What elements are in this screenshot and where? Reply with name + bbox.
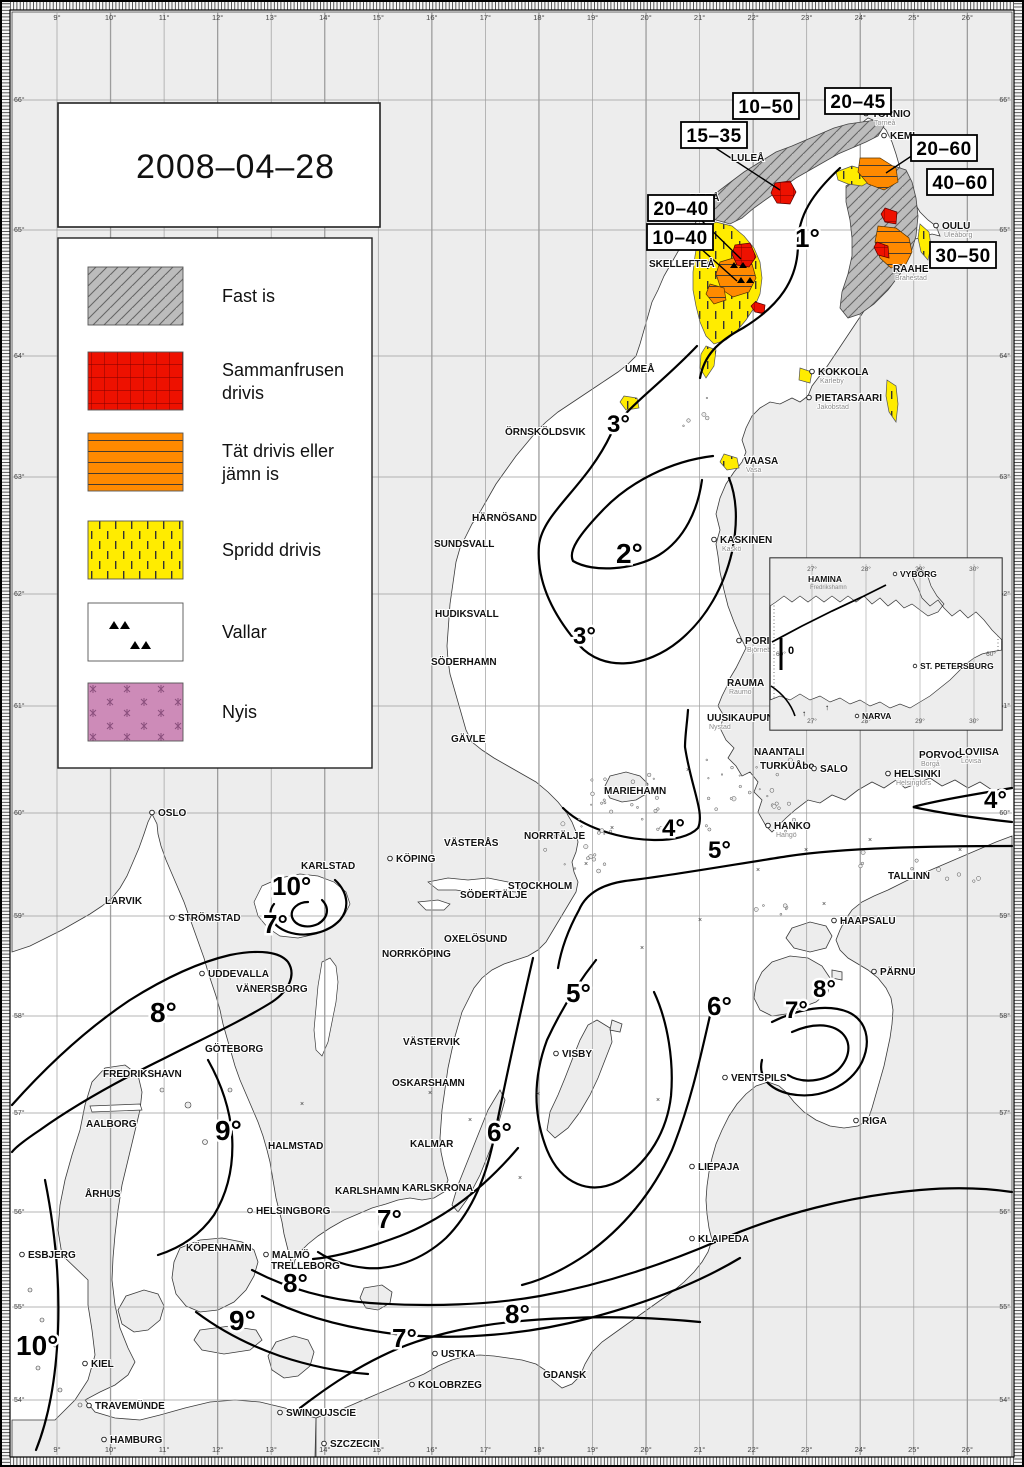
islet-speck	[590, 804, 591, 805]
city-label: HALMSTAD	[268, 1141, 323, 1152]
longitude-label-bottom: 20°	[640, 1445, 651, 1454]
city-label: MALMÖ	[272, 1248, 310, 1261]
city-label: GÖTEBORG	[205, 1042, 264, 1055]
city-secondary-name: Brahestad	[895, 275, 927, 282]
inset-city-marker	[893, 572, 897, 576]
inset-city-secondary-name: Fredrikshamn	[810, 585, 847, 591]
longitude-label-top: 15°	[373, 13, 384, 22]
islet-speck	[731, 766, 734, 769]
observation-mark: ×	[584, 861, 588, 868]
inset-longitude-label: 30°	[969, 565, 979, 573]
longitude-label-bottom: 13°	[266, 1445, 277, 1454]
city-label: HUDIKSVALL	[435, 609, 499, 620]
longitude-label-bottom: 10°	[105, 1445, 116, 1454]
inset-city-label: NARVA	[862, 711, 891, 721]
city-secondary-name: Nystad	[709, 724, 731, 731]
legend-label: drivis	[222, 383, 264, 403]
legend-label: Nyis	[222, 702, 257, 722]
observation-mark: ×	[536, 1091, 540, 1098]
city-marker	[723, 1075, 728, 1080]
inset-city-marker	[913, 664, 917, 668]
ruler-band-right	[1014, 1, 1023, 1466]
city-label: MARIEHAMN	[604, 786, 666, 797]
city-secondary-name: Borgå	[921, 760, 940, 768]
city-secondary-name: Jakobstad	[817, 404, 849, 411]
longitude-label-bottom: 25°	[908, 1445, 919, 1454]
city-label: PÄRNU	[880, 965, 916, 978]
city-label: AALBORG	[86, 1119, 137, 1130]
longitude-label-bottom: 9°	[53, 1445, 60, 1454]
city-marker	[388, 856, 393, 861]
inset-arrow-mark: ↑	[802, 709, 806, 718]
islet-speck	[937, 867, 941, 871]
isotherm-value-label: 7°	[263, 909, 288, 939]
city-label: NORRKÖPING	[382, 947, 451, 960]
islet-speck	[636, 806, 638, 808]
city-marker	[872, 969, 877, 974]
legend-swatch-fast-ice	[88, 267, 183, 325]
city-marker	[810, 369, 815, 374]
islet-speck	[591, 792, 595, 796]
islet	[78, 1403, 82, 1407]
ice-thickness-label: 20–45	[825, 88, 891, 114]
latitude-label-left: 54°	[14, 1396, 25, 1404]
city-label: RIGA	[862, 1116, 887, 1127]
islet-speck	[945, 877, 949, 881]
longitude-label-bottom: 17°	[480, 1445, 491, 1454]
islet-speck	[756, 766, 758, 768]
city-label: HANKO	[774, 821, 811, 832]
islet-speck	[915, 859, 918, 862]
longitude-label-top: 10°	[105, 13, 116, 22]
latitude-label-left: 55°	[14, 1303, 25, 1311]
latitude-label-left: 62°	[14, 590, 25, 598]
observation-mark: ×	[756, 867, 760, 874]
islet-speck	[631, 780, 635, 784]
legend-swatch-open-drift-ice	[88, 521, 183, 579]
city-marker	[690, 1164, 695, 1169]
city-label: LOVIISA	[959, 747, 999, 758]
longitude-label-top: 9°	[53, 13, 60, 22]
city-label: KLAIPEDA	[698, 1234, 749, 1245]
city-label: KOKKOLA	[818, 367, 869, 378]
city-label: RAUMA	[727, 678, 764, 689]
longitude-label-top: 23°	[801, 13, 812, 22]
city-marker	[170, 915, 175, 920]
ice-chart-page: 9°9°10°10°11°11°12°12°13°13°14°14°15°15°…	[0, 0, 1024, 1467]
inset-zero-isotherm-label: 0	[788, 645, 794, 657]
inset-longitude-label: 27°	[807, 717, 817, 725]
city-marker	[886, 771, 891, 776]
latitude-label-right: 55°	[999, 1303, 1010, 1311]
longitude-label-top: 18°	[533, 13, 544, 22]
islet-speck	[706, 397, 708, 399]
city-marker	[20, 1252, 25, 1257]
islet-speck	[861, 850, 865, 854]
isotherm-value-label: 8°	[505, 1299, 530, 1329]
isotherm-value-label: 10°	[16, 1330, 58, 1361]
city-label: PORVOO	[919, 750, 963, 761]
city-marker	[83, 1361, 88, 1366]
longitude-label-bottom: 16°	[426, 1445, 437, 1454]
svg-text:10–40: 10–40	[652, 228, 707, 249]
islet-speck	[911, 867, 914, 870]
legend-label: Vallar	[222, 622, 267, 642]
islet-speck	[561, 822, 565, 826]
city-label: ESBJERG	[28, 1250, 76, 1261]
isotherm-value-label: 5°	[708, 837, 731, 864]
ice-thickness-label: 20–60	[911, 135, 977, 161]
longitude-label-top: 26°	[962, 13, 973, 22]
city-label: LIEPAJA	[698, 1162, 740, 1173]
islet-speck	[597, 831, 600, 834]
city-label: KÖPENHAMN	[186, 1241, 252, 1254]
islet-speck	[770, 788, 774, 792]
baltic-ice-chart-map: 9°9°10°10°11°11°12°12°13°13°14°14°15°15°…	[0, 0, 1024, 1467]
city-secondary-name: Torneå	[874, 119, 896, 127]
city-label: ÖRNSKÖLDSVIK	[505, 425, 586, 438]
ice-thickness-label: 15–35	[681, 122, 747, 148]
observation-mark: ×	[610, 825, 614, 832]
islet-speck	[785, 908, 787, 910]
city-label: OXELÖSUND	[444, 932, 507, 945]
city-label: HAMBURG	[110, 1435, 162, 1446]
legend-label: Sammanfrusen	[222, 360, 344, 380]
islet-speck	[604, 833, 605, 834]
isotherm-value-label: 2°	[616, 538, 643, 569]
islet-speck	[705, 416, 709, 420]
city-label: SÖDERHAMN	[431, 655, 497, 668]
islet-speck	[641, 818, 643, 820]
city-label: FREDRIKSHAVN	[103, 1069, 182, 1080]
islet-speck	[767, 795, 769, 797]
islet	[28, 1288, 32, 1292]
isotherm-value-label: 7°	[392, 1323, 417, 1353]
observation-mark: ×	[300, 1101, 304, 1108]
observation-mark: ×	[958, 847, 962, 854]
city-label: PORI	[745, 636, 770, 647]
city-marker	[737, 638, 742, 643]
city-marker	[87, 1403, 92, 1408]
latitude-label-left: 63°	[14, 473, 25, 481]
latitude-label-left: 59°	[14, 912, 25, 920]
islet-speck	[702, 412, 706, 416]
islet-speck	[574, 868, 576, 870]
city-secondary-name: Vasa	[746, 467, 762, 474]
longitude-label-bottom: 12°	[212, 1445, 223, 1454]
svg-text:40–60: 40–60	[932, 173, 987, 194]
islet	[40, 1318, 44, 1322]
islet	[203, 1140, 208, 1145]
observation-mark: ×	[822, 901, 826, 908]
longitude-label-top: 20°	[640, 13, 651, 22]
city-marker	[554, 1051, 559, 1056]
city-label: HELSINGBORG	[256, 1206, 331, 1217]
latitude-label-left: 57°	[14, 1109, 25, 1117]
chart-date: 2008–04–28	[136, 148, 335, 186]
islet	[160, 1088, 164, 1092]
isotherm-value-label: 7°	[785, 997, 808, 1024]
latitude-label-right: 57°	[999, 1109, 1010, 1117]
islet	[36, 1366, 40, 1370]
islet-speck	[591, 779, 593, 781]
longitude-label-top: 12°	[212, 13, 223, 22]
islet-speck	[739, 785, 742, 788]
islet-speck	[715, 808, 718, 811]
legend-swatch-new-ice	[88, 683, 183, 741]
inset-longitude-label: 27°	[807, 565, 817, 573]
islet-speck	[657, 828, 660, 831]
city-label: NAANTALI	[754, 747, 805, 758]
city-label: NORRTÄLJE	[524, 829, 585, 842]
svg-text:20–45: 20–45	[830, 92, 885, 113]
islet-speck	[647, 773, 651, 777]
isotherm-value-label: 5°	[566, 978, 591, 1008]
longitude-label-top: 14°	[319, 13, 330, 22]
isotherm-value-label: 9°	[215, 1115, 242, 1146]
city-label: SZCZECIN	[330, 1439, 380, 1450]
city-secondary-name: Karleby	[820, 378, 844, 385]
city-secondary-name: Uleåborg	[944, 231, 973, 239]
legend-swatch-close-drift-ice	[88, 433, 183, 491]
longitude-label-bottom: 22°	[747, 1445, 758, 1454]
islet-speck	[653, 778, 655, 780]
islet-speck	[762, 905, 764, 907]
city-label: GÄVLE	[451, 732, 486, 745]
latitude-label-left: 60°	[14, 809, 25, 817]
ice-thickness-label: 30–50	[930, 242, 996, 268]
city-marker	[410, 1382, 415, 1387]
city-label: HAAPSALU	[840, 916, 896, 927]
inset-city-label: ST. PETERSBURG	[920, 661, 994, 671]
latitude-label-right: 54°	[999, 1396, 1010, 1404]
longitude-label-bottom: 23°	[801, 1445, 812, 1454]
islet-speck	[748, 791, 751, 794]
latitude-label-left: 58°	[14, 1012, 25, 1020]
observation-mark: ×	[698, 917, 702, 924]
observation-mark: ×	[804, 847, 808, 854]
islet-speck	[776, 773, 779, 776]
city-label: UDDEVALLA	[208, 969, 269, 980]
city-marker	[807, 395, 812, 400]
latitude-label-left: 64°	[14, 352, 25, 360]
legend-swatch-ridges	[88, 603, 183, 661]
city-label: LULEÅ	[731, 151, 764, 164]
islet-speck	[787, 802, 790, 805]
city-secondary-name: Hangö	[776, 832, 797, 839]
city-marker	[102, 1437, 107, 1442]
svg-text:30–50: 30–50	[935, 246, 990, 267]
city-marker	[150, 810, 155, 815]
islet-speck	[584, 844, 588, 848]
longitude-label-top: 16°	[426, 13, 437, 22]
svg-text:20–40: 20–40	[653, 199, 708, 220]
islet-speck	[772, 804, 776, 808]
isotherm-value-label: 8°	[283, 1268, 308, 1298]
islet-speck	[778, 807, 781, 810]
islet-speck	[586, 857, 589, 860]
latitude-label-right: 58°	[999, 1012, 1010, 1020]
city-label: VAASA	[744, 456, 778, 467]
city-marker	[854, 1118, 859, 1123]
islet	[228, 1088, 232, 1092]
ruler-band-left	[1, 1, 10, 1466]
islet-speck	[705, 825, 707, 827]
city-marker	[200, 971, 205, 976]
city-marker	[322, 1441, 327, 1446]
latitude-label-left: 65°	[14, 226, 25, 234]
isotherm-value-label: 8°	[150, 997, 177, 1028]
latitude-label-right: 66°	[999, 96, 1010, 104]
city-label: GDANSK	[543, 1370, 587, 1381]
city-marker	[812, 766, 817, 771]
city-label: OULU	[942, 221, 970, 232]
legend-label: Spridd drivis	[222, 540, 321, 560]
gulf-of-finland-inset-map: 27°27°28°28°29°29°30°30°60°60°0↑↑HAMINAF…	[770, 558, 1002, 730]
islet-speck	[654, 809, 657, 812]
islet-speck	[630, 803, 633, 806]
inset-longitude-label: 30°	[969, 717, 979, 725]
isotherm-value-label: 6°	[487, 1117, 512, 1147]
isotherm-value-label: 6°	[707, 991, 732, 1021]
longitude-label-bottom: 26°	[962, 1445, 973, 1454]
city-label: VÄNERSBORG	[236, 982, 308, 995]
city-label: TRAVEMÜNDE	[95, 1399, 165, 1412]
city-label: HÄRNÖSAND	[472, 511, 537, 524]
latitude-label-left: 56°	[14, 1208, 25, 1216]
legend-label: Tät drivis eller	[222, 441, 334, 461]
islet-speck	[604, 802, 606, 804]
longitude-label-top: 13°	[266, 13, 277, 22]
city-marker	[248, 1208, 253, 1213]
longitude-label-bottom: 14°	[319, 1445, 330, 1454]
city-marker	[264, 1252, 269, 1257]
islet-speck	[544, 848, 547, 851]
longitude-label-top: 17°	[480, 13, 491, 22]
isotherm-value-label: 1°	[795, 223, 820, 253]
city-marker	[712, 537, 717, 542]
latitude-label-right: 65°	[999, 226, 1010, 234]
islet-speck	[600, 829, 604, 833]
longitude-label-bottom: 18°	[533, 1445, 544, 1454]
islet-speck	[754, 907, 758, 911]
observation-mark: ×	[468, 1117, 472, 1124]
latitude-label-right: 59°	[999, 912, 1010, 920]
islet	[58, 1388, 62, 1392]
ice-thickness-label: 10–50	[733, 93, 799, 119]
islet-speck	[780, 913, 782, 915]
city-marker	[934, 223, 939, 228]
longitude-label-bottom: 11°	[159, 1445, 170, 1454]
city-label: KARLSHAMN	[335, 1186, 399, 1197]
inset-city-marker	[855, 714, 859, 718]
islet-speck	[759, 789, 760, 790]
ruler-band-bottom	[1, 1457, 1023, 1466]
islet-speck	[976, 876, 980, 880]
ice-thickness-label: 10–40	[647, 224, 713, 250]
city-label: LARVIK	[105, 896, 143, 907]
isotherm-value-label: 4°	[662, 815, 685, 842]
inset-city-label: VYBORG	[900, 569, 937, 579]
city-label: KÖPING	[396, 852, 436, 865]
longitude-label-top: 25°	[908, 13, 919, 22]
islet-speck	[706, 759, 708, 761]
city-marker	[278, 1410, 283, 1415]
longitude-label-top: 22°	[747, 13, 758, 22]
latitude-label-right: 64°	[999, 352, 1010, 360]
observation-mark: ×	[428, 1090, 432, 1097]
islet-speck	[973, 880, 976, 883]
city-label: SWINOUJSCIE	[286, 1408, 356, 1419]
city-label: RAAHE	[893, 264, 929, 275]
latitude-label-right: 56°	[999, 1208, 1010, 1216]
islet-speck	[600, 802, 602, 804]
islet-speck	[603, 799, 605, 801]
islet-speck	[721, 774, 723, 776]
city-label: SKELLEFTEÅ	[649, 257, 715, 270]
city-label: OSLO	[158, 808, 187, 819]
ruler-band-top	[1, 1, 1023, 10]
city-label: VÄSTERÅS	[444, 836, 499, 849]
city-label: KOLOBRZEG	[418, 1380, 482, 1391]
city-label: ÅRHUS	[85, 1187, 121, 1200]
city-marker	[766, 823, 771, 828]
legend: Fast isSammanfrusendrivisTät drivis elle…	[58, 238, 372, 768]
islet-speck	[708, 777, 710, 779]
city-label: UMEÅ	[625, 362, 654, 375]
inset-longitude-label: 28°	[861, 565, 871, 573]
city-label: VISBY	[562, 1049, 592, 1060]
legend-label: jämn is	[221, 464, 279, 484]
isotherm-value-label: 8°	[813, 976, 836, 1003]
city-label: OSKARSHAMN	[392, 1078, 465, 1089]
city-secondary-name: Lovisa	[961, 758, 981, 765]
city-label: PIETARSAARI	[815, 393, 882, 404]
latitude-label-left: 66°	[14, 96, 25, 104]
city-label: TURKUÅbo	[760, 759, 814, 772]
legend-label: Fast is	[222, 286, 275, 306]
city-label: SUNDSVALL	[434, 539, 494, 550]
islet-speck	[597, 869, 601, 873]
svg-text:10–50: 10–50	[738, 97, 793, 118]
islet-speck	[957, 873, 961, 877]
longitude-label-bottom: 19°	[587, 1445, 598, 1454]
islet-speck	[687, 419, 691, 423]
city-marker	[690, 1236, 695, 1241]
svg-text:15–35: 15–35	[686, 126, 741, 147]
city-marker	[433, 1351, 438, 1356]
islet-speck	[593, 854, 596, 857]
city-label: VENTSPILS	[731, 1073, 787, 1084]
islet-speck	[859, 864, 863, 868]
city-label: KALMAR	[410, 1139, 454, 1150]
longitude-label-top: 19°	[587, 13, 598, 22]
islet-speck	[707, 797, 710, 800]
islet-speck	[708, 828, 711, 831]
city-marker	[882, 133, 887, 138]
islet-speck	[581, 826, 583, 828]
latitude-label-left: 61°	[14, 702, 25, 710]
islet-speck	[730, 797, 732, 799]
city-label: KARLSKRONA	[402, 1183, 473, 1194]
islet-speck	[603, 863, 606, 866]
svg-text:20–60: 20–60	[916, 139, 971, 160]
city-label: TALLINN	[888, 871, 930, 882]
city-label: VÄSTERVIK	[403, 1035, 461, 1048]
islet-speck	[610, 810, 613, 813]
longitude-label-bottom: 21°	[694, 1445, 705, 1454]
isotherm-value-label: 3°	[573, 623, 596, 650]
